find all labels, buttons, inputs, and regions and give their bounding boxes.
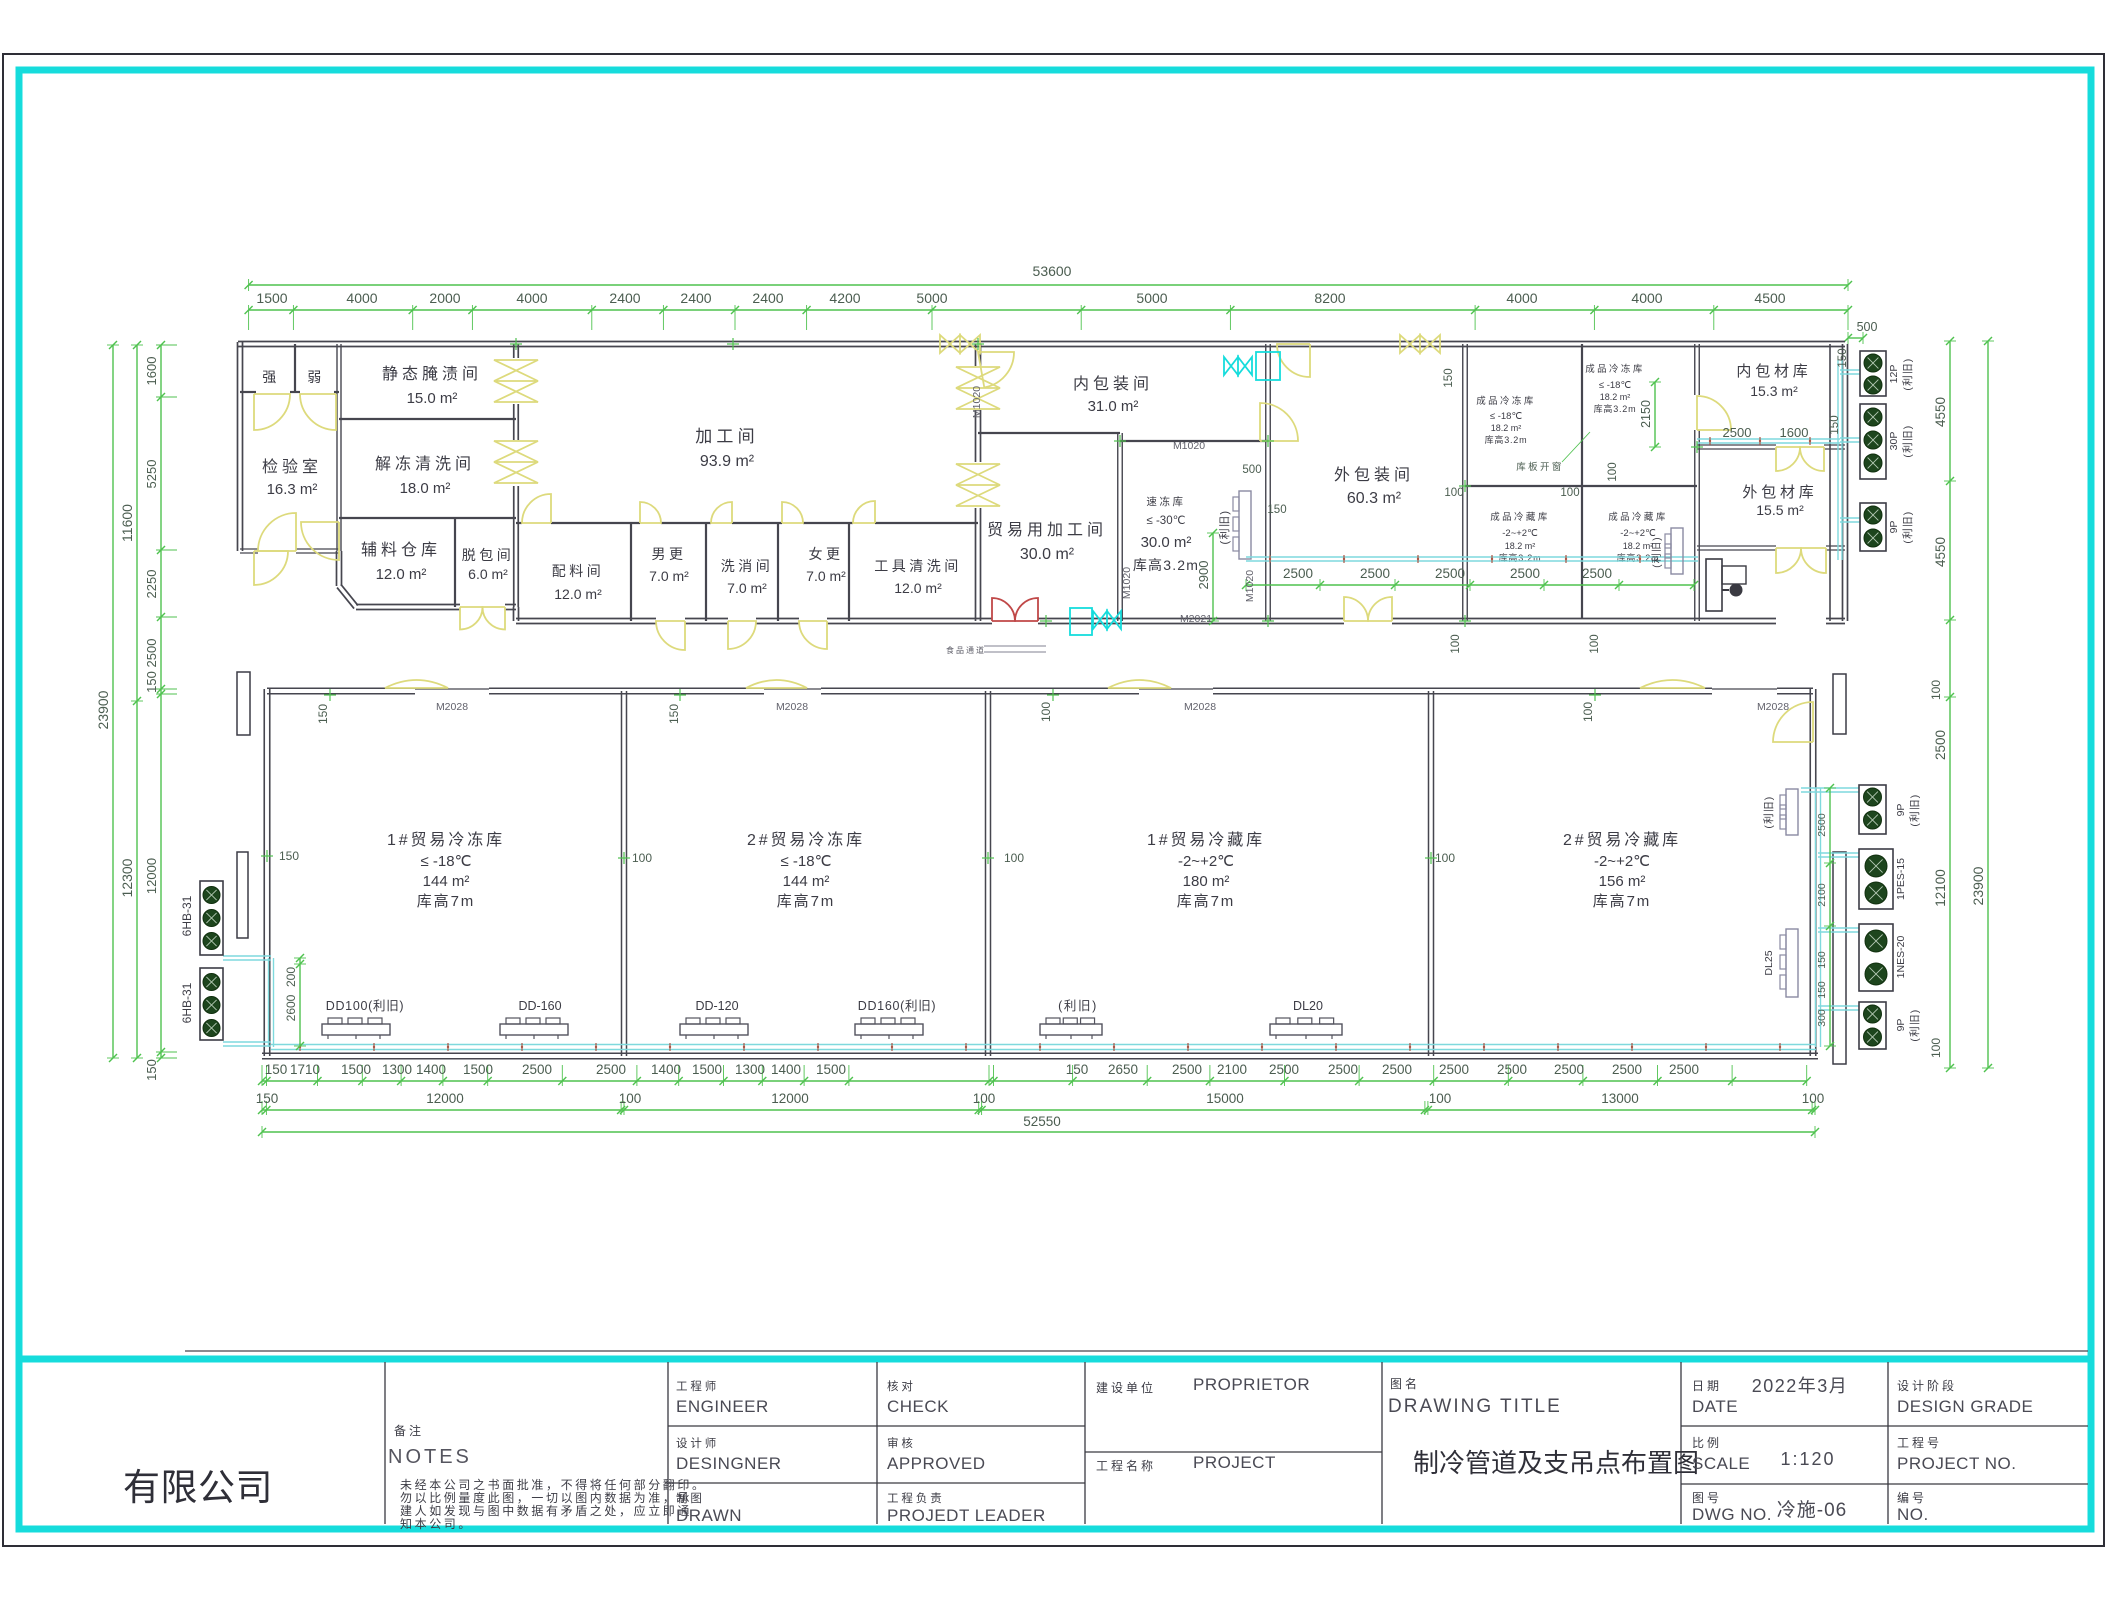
svg-text:解冻清洗间: 解冻清洗间 <box>375 455 475 473</box>
svg-text:100: 100 <box>1435 851 1455 865</box>
svg-text:PROPRIETOR: PROPRIETOR <box>1193 1375 1310 1394</box>
svg-text:制冷管道及支吊点布置图: 制冷管道及支吊点布置图 <box>1413 1448 1699 1478</box>
svg-text:1500: 1500 <box>692 1062 722 1077</box>
svg-text:5250: 5250 <box>144 460 159 489</box>
svg-text:DESIGN GRADE: DESIGN GRADE <box>1897 1397 2033 1416</box>
svg-text:DRAWING TITLE: DRAWING TITLE <box>1388 1396 1562 1417</box>
svg-text:93.9 m²: 93.9 m² <box>700 453 755 470</box>
svg-text:12.0 m²: 12.0 m² <box>376 566 427 583</box>
svg-text:12.0 m²: 12.0 m² <box>554 586 602 602</box>
svg-text:成品冷藏库: 成品冷藏库 <box>1490 511 1550 523</box>
svg-text:内包装间: 内包装间 <box>1073 375 1153 393</box>
svg-text:-2~+2℃: -2~+2℃ <box>1594 853 1650 870</box>
svg-text:辅料仓库: 辅料仓库 <box>361 541 441 559</box>
svg-text:(利旧): (利旧) <box>1058 999 1098 1013</box>
svg-text:NOTES: NOTES <box>388 1446 472 1468</box>
svg-text:工程名称: 工程名称 <box>1096 1458 1156 1473</box>
svg-text:(利旧): (利旧) <box>1218 510 1231 545</box>
svg-text:审核: 审核 <box>887 1436 916 1450</box>
svg-text:2500: 2500 <box>1554 1062 1584 1077</box>
svg-text:日期: 日期 <box>1692 1379 1722 1393</box>
svg-text:M1020: M1020 <box>1244 570 1256 602</box>
svg-text:成品冷冻库: 成品冷冻库 <box>1476 395 1536 407</box>
svg-text:4550: 4550 <box>1933 397 1948 427</box>
svg-text:100: 100 <box>1039 702 1053 722</box>
svg-text:≤ -18℃: ≤ -18℃ <box>1490 411 1523 422</box>
svg-text:2500: 2500 <box>1283 566 1313 581</box>
svg-text:≤ -18℃: ≤ -18℃ <box>781 853 832 870</box>
svg-text:18.2 m²: 18.2 m² <box>1623 541 1654 551</box>
svg-text:2500: 2500 <box>1382 1062 1412 1077</box>
svg-text:M2028: M2028 <box>1757 701 1789 713</box>
svg-text:100: 100 <box>1589 634 1601 653</box>
svg-text:贸易用加工间: 贸易用加工间 <box>987 521 1107 539</box>
svg-text:-2~+2℃: -2~+2℃ <box>1178 853 1234 870</box>
svg-text:23900: 23900 <box>1970 866 1986 905</box>
svg-text:2500: 2500 <box>596 1062 626 1077</box>
svg-text:工具清洗间: 工具清洗间 <box>874 558 962 574</box>
svg-text:M2028: M2028 <box>436 701 468 713</box>
svg-text:150: 150 <box>256 1091 279 1106</box>
svg-text:建设单位: 建设单位 <box>1096 1380 1156 1395</box>
svg-text:12P: 12P <box>1888 365 1900 384</box>
svg-text:18.0 m²: 18.0 m² <box>400 480 451 497</box>
svg-text:15000: 15000 <box>1206 1091 1244 1106</box>
svg-text:外包装间: 外包装间 <box>1334 466 1414 484</box>
svg-text:2500: 2500 <box>1328 1062 1358 1077</box>
svg-text:M2028: M2028 <box>1184 701 1216 713</box>
svg-text:300: 300 <box>1816 1009 1828 1027</box>
svg-text:1400: 1400 <box>416 1062 446 1077</box>
svg-text:1500: 1500 <box>463 1062 493 1077</box>
svg-text:2500: 2500 <box>144 639 159 668</box>
svg-text:1PES-15: 1PES-15 <box>1895 858 1907 900</box>
svg-text:4000: 4000 <box>346 290 377 306</box>
svg-text:13000: 13000 <box>1601 1091 1639 1106</box>
svg-text:备注: 备注 <box>394 1423 424 1438</box>
svg-text:2500: 2500 <box>1269 1062 1299 1077</box>
svg-text:5000: 5000 <box>916 290 947 306</box>
svg-text:150: 150 <box>667 704 681 724</box>
svg-text:144 m²: 144 m² <box>783 873 830 890</box>
svg-text:1500: 1500 <box>341 1062 371 1077</box>
svg-text:7.0 m²: 7.0 m² <box>806 568 846 584</box>
svg-text:库高7m: 库高7m <box>1593 893 1651 910</box>
svg-text:156 m²: 156 m² <box>1599 873 1646 890</box>
svg-text:100: 100 <box>1004 851 1024 865</box>
svg-text:库高3.2m: 库高3.2m <box>1133 557 1199 573</box>
svg-text:16.3 m²: 16.3 m² <box>267 481 318 498</box>
svg-text:1:120: 1:120 <box>1780 1449 1835 1469</box>
svg-text:(利旧): (利旧) <box>1909 1008 1921 1041</box>
svg-text:100: 100 <box>1444 487 1463 499</box>
svg-text:100: 100 <box>1450 634 1462 653</box>
svg-text:1500: 1500 <box>816 1062 846 1077</box>
svg-text:6HB-31: 6HB-31 <box>180 895 194 936</box>
svg-text:工程号: 工程号 <box>1897 1435 1942 1450</box>
svg-text:女更: 女更 <box>809 546 844 562</box>
svg-text:2500: 2500 <box>1933 730 1948 760</box>
svg-text:(利旧): (利旧) <box>1902 357 1914 390</box>
svg-text:NO.: NO. <box>1897 1505 1929 1524</box>
svg-text:7.0 m²: 7.0 m² <box>727 580 767 596</box>
svg-text:脱包间: 脱包间 <box>462 547 515 563</box>
svg-text:100: 100 <box>1429 1091 1452 1106</box>
svg-text:2500: 2500 <box>1612 1062 1642 1077</box>
svg-text:150: 150 <box>1837 348 1849 367</box>
svg-text:4200: 4200 <box>829 290 860 306</box>
svg-text:2500: 2500 <box>1360 566 1390 581</box>
svg-text:150: 150 <box>1066 1062 1089 1077</box>
svg-text:6.0 m²: 6.0 m² <box>468 566 508 582</box>
svg-text:M1020: M1020 <box>1121 567 1133 599</box>
svg-text:DL20: DL20 <box>1293 999 1323 1013</box>
svg-text:4550: 4550 <box>1933 537 1948 567</box>
svg-text:9P: 9P <box>1895 804 1907 817</box>
svg-text:100: 100 <box>1802 1091 1825 1106</box>
svg-text:15.0 m²: 15.0 m² <box>407 390 458 407</box>
svg-text:1NES-20: 1NES-20 <box>1895 936 1907 979</box>
svg-text:144 m²: 144 m² <box>423 873 470 890</box>
svg-text:12.0 m²: 12.0 m² <box>894 580 942 596</box>
svg-text:1500: 1500 <box>256 290 287 306</box>
svg-text:DESINGNER: DESINGNER <box>676 1454 782 1473</box>
svg-text:配料间: 配料间 <box>552 563 605 579</box>
svg-text:M2021: M2021 <box>1180 613 1212 625</box>
svg-text:30.0 m²: 30.0 m² <box>1141 534 1192 551</box>
svg-text:2150: 2150 <box>1639 400 1653 428</box>
svg-text:M1020: M1020 <box>1173 440 1205 452</box>
svg-text:150: 150 <box>265 1062 288 1077</box>
svg-text:PROJECT NO.: PROJECT NO. <box>1897 1454 2016 1473</box>
svg-text:100: 100 <box>1607 462 1619 481</box>
svg-text:12000: 12000 <box>426 1091 464 1106</box>
svg-text:2500: 2500 <box>1816 813 1828 837</box>
svg-text:2400: 2400 <box>609 290 640 306</box>
svg-text:30.0 m²: 30.0 m² <box>1020 546 1075 563</box>
svg-text:1300: 1300 <box>735 1062 765 1077</box>
svg-text:15.3 m²: 15.3 m² <box>1750 383 1798 399</box>
svg-text:库板开窗: 库板开窗 <box>1516 461 1564 473</box>
svg-text:1600: 1600 <box>1780 425 1809 440</box>
svg-text:8200: 8200 <box>1314 290 1345 306</box>
svg-text:100: 100 <box>632 851 652 865</box>
svg-text:2500: 2500 <box>1435 566 1465 581</box>
svg-text:2500: 2500 <box>1510 566 1540 581</box>
svg-text:100: 100 <box>1560 487 1579 499</box>
svg-text:内包材库: 内包材库 <box>1736 363 1811 380</box>
svg-text:工程师: 工程师 <box>676 1380 719 1393</box>
svg-text:成品冷冻库: 成品冷冻库 <box>1585 363 1645 375</box>
svg-text:PROJEDT LEADER: PROJEDT LEADER <box>887 1506 1046 1525</box>
svg-text:1600: 1600 <box>144 357 159 386</box>
svg-text:DD100(利旧): DD100(利旧) <box>326 999 405 1013</box>
svg-text:2500: 2500 <box>1439 1062 1469 1077</box>
svg-text:库高3.2m: 库高3.2m <box>1485 434 1528 445</box>
svg-text:18.2 m²: 18.2 m² <box>1600 392 1631 402</box>
svg-text:检验室: 检验室 <box>262 458 322 476</box>
svg-text:2100: 2100 <box>1816 883 1828 907</box>
svg-text:静态腌渍间: 静态腌渍间 <box>382 365 482 383</box>
svg-text:500: 500 <box>1242 464 1261 476</box>
svg-text:制图: 制图 <box>676 1492 705 1505</box>
svg-text:未经本公司之书面批准，不得将任何部分翻印。: 未经本公司之书面批准，不得将任何部分翻印。 <box>400 1477 707 1492</box>
svg-text:150: 150 <box>1816 981 1828 999</box>
svg-text:18.2 m²: 18.2 m² <box>1491 423 1522 433</box>
svg-text:(利旧): (利旧) <box>1909 793 1921 826</box>
svg-text:库高3.2m: 库高3.2m <box>1594 403 1637 414</box>
svg-text:DL25: DL25 <box>1763 950 1775 975</box>
svg-text:设计阶段: 设计阶段 <box>1897 1378 1957 1393</box>
svg-text:库高7m: 库高7m <box>777 893 835 910</box>
svg-text:150: 150 <box>316 704 330 724</box>
svg-text:-2~+2℃: -2~+2℃ <box>1620 528 1656 539</box>
svg-text:食品通道: 食品通道 <box>946 645 986 655</box>
svg-text:150: 150 <box>144 1059 159 1081</box>
svg-text:150: 150 <box>1816 951 1828 969</box>
svg-text:强: 强 <box>262 369 280 385</box>
svg-text:勿以比例量度此图，一切以图内数据为准，承: 勿以比例量度此图，一切以图内数据为准，承 <box>400 1490 692 1505</box>
svg-text:有限公司: 有限公司 <box>123 1467 273 1508</box>
svg-text:2900: 2900 <box>1196 561 1211 590</box>
svg-text:DRAWN: DRAWN <box>676 1506 742 1525</box>
svg-text:1710: 1710 <box>290 1062 320 1077</box>
svg-text:APPROVED: APPROVED <box>887 1454 985 1473</box>
svg-text:100: 100 <box>1929 680 1943 700</box>
svg-text:DD160(利旧): DD160(利旧) <box>858 999 937 1013</box>
svg-text:60.3 m²: 60.3 m² <box>1347 490 1402 507</box>
svg-text:2000: 2000 <box>429 290 460 306</box>
svg-text:(利旧): (利旧) <box>1902 424 1914 457</box>
svg-text:2400: 2400 <box>752 290 783 306</box>
svg-text:2400: 2400 <box>680 290 711 306</box>
svg-text:PROJECT: PROJECT <box>1193 1453 1276 1472</box>
svg-text:2500: 2500 <box>1172 1062 1202 1077</box>
svg-text:编号: 编号 <box>1897 1490 1927 1505</box>
svg-text:(利旧): (利旧) <box>1763 795 1775 828</box>
svg-text:30P: 30P <box>1888 432 1900 451</box>
svg-text:4000: 4000 <box>1631 290 1662 306</box>
svg-text:M1020: M1020 <box>971 386 983 418</box>
svg-text:12000: 12000 <box>144 858 159 894</box>
svg-text:53600: 53600 <box>1033 263 1072 279</box>
svg-text:库高7m: 库高7m <box>417 893 475 910</box>
svg-text:180 m²: 180 m² <box>1183 873 1230 890</box>
svg-text:500: 500 <box>1857 320 1878 334</box>
svg-text:DWG NO.: DWG NO. <box>1692 1505 1772 1524</box>
svg-text:图号: 图号 <box>1692 1491 1722 1505</box>
svg-text:5000: 5000 <box>1136 290 1167 306</box>
svg-text:建人如发现与图中数据有矛盾之处，应立即通: 建人如发现与图中数据有矛盾之处，应立即通 <box>400 1503 692 1518</box>
svg-text:(利旧): (利旧) <box>1651 536 1663 567</box>
svg-text:男更: 男更 <box>652 546 687 562</box>
svg-text:200: 200 <box>284 967 298 987</box>
svg-text:2500: 2500 <box>1582 566 1612 581</box>
svg-text:冷施-06: 冷施-06 <box>1777 1499 1847 1521</box>
svg-text:150: 150 <box>279 849 299 863</box>
svg-text:库高7m: 库高7m <box>1177 893 1235 910</box>
svg-text:23900: 23900 <box>95 690 111 729</box>
svg-text:2500: 2500 <box>1669 1062 1699 1077</box>
svg-text:4000: 4000 <box>1506 290 1537 306</box>
svg-text:15.5 m²: 15.5 m² <box>1756 502 1804 518</box>
svg-text:速冻库: 速冻库 <box>1146 495 1185 508</box>
svg-text:2500: 2500 <box>1497 1062 1527 1077</box>
svg-text:成品冷藏库: 成品冷藏库 <box>1608 511 1668 523</box>
svg-text:150: 150 <box>1829 415 1841 434</box>
svg-text:150: 150 <box>144 671 159 693</box>
svg-text:2#贸易冷藏库: 2#贸易冷藏库 <box>1563 831 1681 849</box>
svg-text:≤ -18℃: ≤ -18℃ <box>421 853 472 870</box>
svg-text:1#贸易冷藏库: 1#贸易冷藏库 <box>1147 831 1265 849</box>
svg-text:6HB-31: 6HB-31 <box>180 982 194 1023</box>
svg-text:2650: 2650 <box>1108 1062 1138 1077</box>
svg-text:(利旧): (利旧) <box>1902 510 1914 543</box>
svg-text:1300: 1300 <box>382 1062 412 1077</box>
svg-text:DD-160: DD-160 <box>518 999 561 1013</box>
svg-text:2022年3月: 2022年3月 <box>1752 1376 1849 1396</box>
svg-text:31.0 m²: 31.0 m² <box>1088 398 1139 415</box>
svg-text:150: 150 <box>1443 368 1455 387</box>
svg-text:12100: 12100 <box>1933 869 1948 907</box>
svg-text:CHECK: CHECK <box>887 1397 949 1416</box>
svg-text:4500: 4500 <box>1754 290 1785 306</box>
svg-text:工程负责: 工程负责 <box>887 1491 945 1505</box>
svg-text:DD-120: DD-120 <box>695 999 738 1013</box>
svg-text:100: 100 <box>1581 702 1595 722</box>
svg-text:2500: 2500 <box>1723 425 1752 440</box>
svg-text:M2028: M2028 <box>776 701 808 713</box>
svg-text:1400: 1400 <box>651 1062 681 1077</box>
svg-text:52550: 52550 <box>1023 1114 1061 1129</box>
svg-text:DATE: DATE <box>1692 1397 1738 1416</box>
svg-text:100: 100 <box>973 1091 996 1106</box>
svg-text:12000: 12000 <box>771 1091 809 1106</box>
svg-text:加工间: 加工间 <box>695 427 759 446</box>
svg-text:100: 100 <box>1929 1038 1943 1058</box>
svg-text:设计师: 设计师 <box>676 1437 719 1450</box>
svg-text:7.0 m²: 7.0 m² <box>649 568 689 584</box>
svg-text:1400: 1400 <box>771 1062 801 1077</box>
svg-text:SCALE: SCALE <box>1692 1454 1750 1473</box>
svg-text:2250: 2250 <box>144 570 159 599</box>
svg-text:100: 100 <box>619 1091 642 1106</box>
svg-text:9P: 9P <box>1895 1019 1907 1032</box>
svg-text:2500: 2500 <box>522 1062 552 1077</box>
svg-text:知本公司。: 知本公司。 <box>400 1517 473 1531</box>
svg-text:-2~+2℃: -2~+2℃ <box>1502 528 1538 539</box>
svg-text:150: 150 <box>1267 504 1286 516</box>
svg-text:4000: 4000 <box>516 290 547 306</box>
svg-text:核对: 核对 <box>887 1379 916 1393</box>
svg-text:弱: 弱 <box>307 369 325 385</box>
svg-text:ENGINEER: ENGINEER <box>676 1397 769 1416</box>
svg-text:12300: 12300 <box>119 858 135 897</box>
svg-text:外包材库: 外包材库 <box>1742 484 1817 501</box>
svg-text:11600: 11600 <box>119 504 135 542</box>
svg-text:1#贸易冷冻库: 1#贸易冷冻库 <box>387 831 505 849</box>
svg-text:≤ -30℃: ≤ -30℃ <box>1146 515 1185 527</box>
svg-text:≤ -18℃: ≤ -18℃ <box>1599 380 1632 391</box>
svg-text:18.2 m²: 18.2 m² <box>1505 541 1536 551</box>
svg-text:2#贸易冷冻库: 2#贸易冷冻库 <box>747 831 865 849</box>
svg-text:9P: 9P <box>1888 521 1900 534</box>
svg-text:2600: 2600 <box>284 994 298 1021</box>
svg-text:洗消间: 洗消间 <box>721 558 774 574</box>
svg-text:2100: 2100 <box>1217 1062 1247 1077</box>
svg-text:图名: 图名 <box>1390 1376 1420 1391</box>
svg-text:比例: 比例 <box>1692 1436 1722 1450</box>
